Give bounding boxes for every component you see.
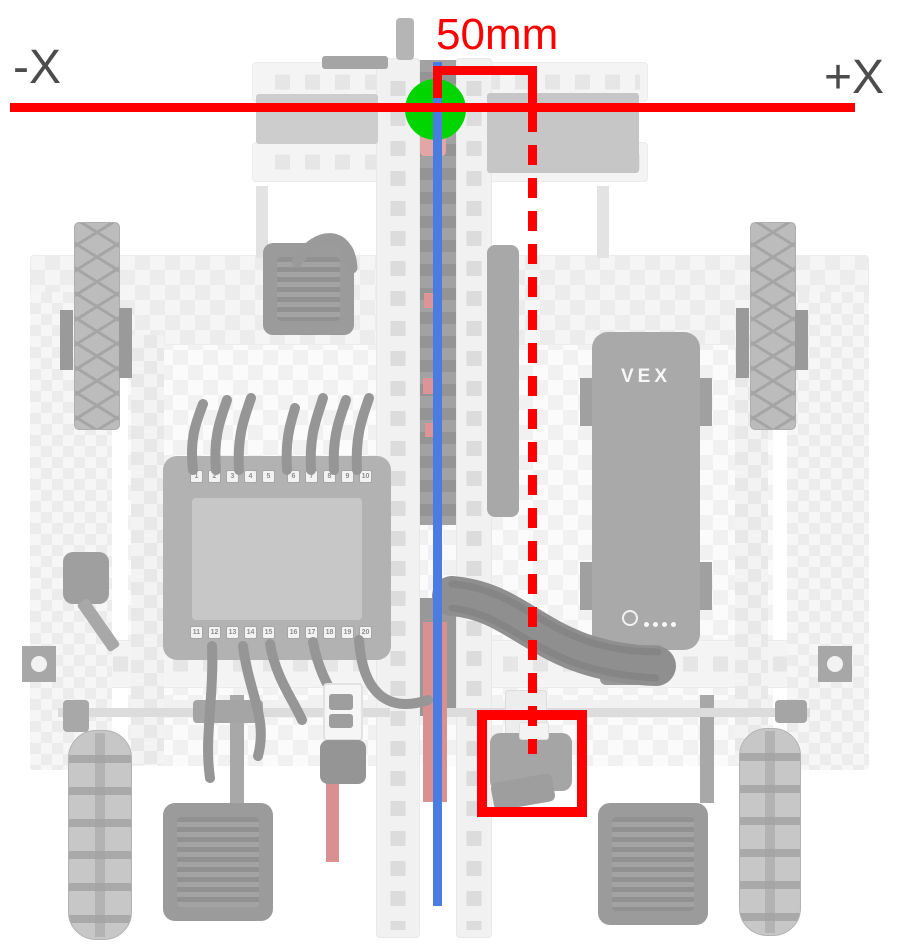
port-number: 15 (262, 626, 275, 639)
robot-offset-diagram: 1 2 3 4 5 6 7 8 9 10 11 12 13 14 15 16 1… (0, 0, 899, 944)
arm-motor (263, 243, 354, 335)
port-number: 2 (208, 470, 221, 483)
port-number: 10 (359, 470, 372, 483)
axis-label-positive-x: +X (824, 54, 884, 102)
axis-label-negative-x: -X (13, 44, 61, 92)
bumper-flag (63, 552, 109, 604)
wheel-flange (119, 308, 132, 378)
port-number: 1 (190, 470, 203, 483)
port-number: 8 (323, 470, 336, 483)
port-number: 12 (208, 626, 221, 639)
port-number: 14 (244, 626, 257, 639)
port-number: 7 (305, 470, 318, 483)
battery-tab (698, 562, 712, 610)
port-number: 9 (341, 470, 354, 483)
measurement-bracket-top (433, 66, 537, 75)
measurement-label: 50mm (436, 13, 558, 57)
cable-clip-insert (329, 694, 353, 710)
vex-logo: VEX (592, 366, 700, 388)
axle-collar-left (193, 700, 263, 723)
port-number: 18 (323, 626, 336, 639)
battery-tab (698, 378, 712, 426)
port-number: 11 (190, 626, 203, 639)
cable-clip-insert (329, 714, 353, 728)
standoff-post-right (597, 186, 609, 258)
sensor-highlight-box (477, 710, 587, 817)
brain-ports-top-row: 1 2 3 4 5 6 7 8 9 10 (190, 470, 372, 483)
axle-collar-right (775, 700, 807, 723)
rear-right-motor (598, 803, 708, 925)
port-number: 5 (262, 470, 275, 483)
brain-ports-bottom-row: 11 12 13 14 15 16 17 18 19 20 (190, 626, 372, 639)
port-number: 16 (287, 626, 300, 639)
battery-power-button (622, 610, 638, 626)
battery-connector (600, 645, 664, 685)
brain-screen (192, 498, 362, 620)
measurement-bracket-right-tick (528, 66, 537, 106)
cable-clip (323, 683, 363, 741)
lock-plate-left (22, 646, 56, 682)
cable-connector-blob (320, 740, 366, 784)
front-right-wheel (750, 222, 796, 430)
wheel-flange (795, 310, 808, 370)
robot-center-line (433, 62, 442, 906)
port-number: 13 (226, 626, 239, 639)
sensor-offset-dashed-line (528, 112, 537, 754)
wheel-flange (736, 308, 749, 378)
rear-right-omni-wheel (739, 728, 801, 936)
lock-plate-right (818, 646, 852, 682)
x-axis-line (10, 103, 855, 112)
port-number: 17 (305, 626, 318, 639)
claw-plate-left (256, 94, 378, 144)
port-number: 6 (287, 470, 300, 483)
measurement-bracket-left-tick (433, 66, 442, 98)
gray-bar-right-of-tower (487, 245, 519, 517)
port-number: 3 (226, 470, 239, 483)
port-number: 19 (341, 626, 354, 639)
rear-left-omni-wheel (68, 730, 132, 940)
front-left-wheel (74, 222, 120, 430)
axle-block-left (63, 700, 89, 732)
inner-left-rail (131, 335, 164, 765)
wheel-flange (60, 310, 73, 370)
rear-left-motor (163, 803, 273, 921)
port-number: 20 (359, 626, 372, 639)
battery-charge-dots (640, 614, 676, 632)
claw-nub (396, 18, 414, 60)
port-number: 4 (244, 470, 257, 483)
claw-cross-bar (322, 56, 388, 69)
